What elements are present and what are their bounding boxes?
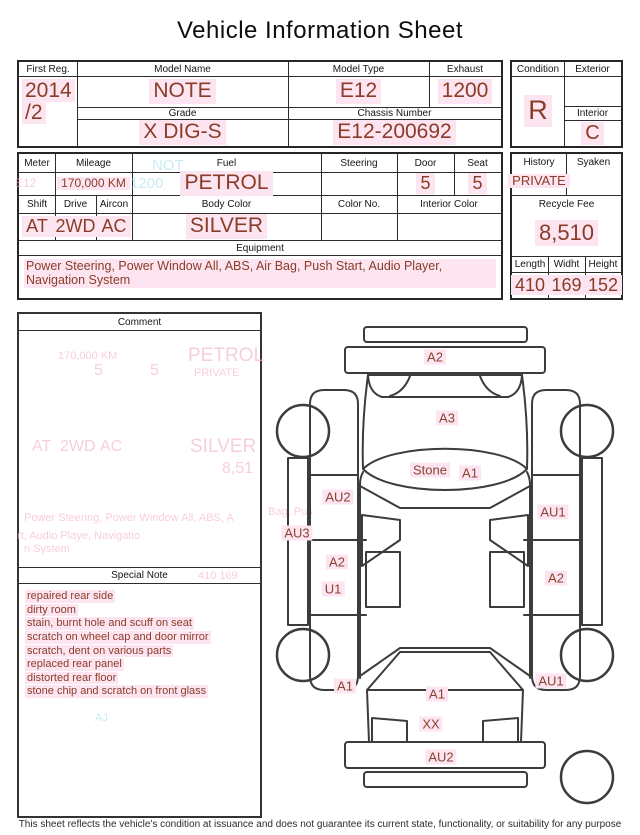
damage-code-label: AU1 [535,674,566,689]
damage-code-label: A1 [334,679,356,694]
damage-code-label: A2 [545,571,567,586]
car-damage-diagram [268,312,632,812]
table-history-fees: History PRIVATE Syaken Recycle Fee 8,510… [510,152,623,300]
spare-wheel [561,751,613,803]
mileage-label: Mileage [55,156,132,170]
special-note-line: distorted rear floor [19,671,260,685]
drive-value: 2WD [52,216,100,237]
condition-label: Condition [512,62,564,76]
damage-code-label: A1 [459,466,481,481]
history-label: History [512,156,566,169]
length-label: Length [512,257,548,271]
damage-code-label: AU2 [322,490,353,505]
grade-label: Grade [77,107,288,119]
wheel-front-right [561,629,613,681]
left-sill [288,458,308,625]
color-no-label: Color No. [321,197,397,211]
wheel-front-left [277,629,329,681]
chassis-number-value: E12-200692 [333,120,455,144]
exterior-label: Exterior [564,62,621,76]
damage-code-label: AU2 [425,750,456,765]
mileage-value: 170,000 KM [57,177,130,191]
equipment-label: Equipment [19,241,501,255]
length-value: 410 [511,275,549,296]
special-note-line: repaired rear side [19,589,260,603]
damage-code-label: Stone [410,463,450,478]
history-value: PRIVATE [508,174,570,189]
wheel-rear-right [561,405,613,457]
width-label: Widht [548,257,585,271]
special-note-line: stain, burnt hole and scuff on seat [19,616,260,630]
damage-code-label: XX [419,717,442,732]
body-color-label: Body Color [132,197,321,211]
syaken-label: Syaken [566,156,621,169]
width-value: 169 [547,275,585,296]
grade-value: X DIG-S [139,120,225,144]
comment-box: Comment Special Note repaired rear sided… [17,312,262,818]
special-note-line: replaced rear panel [19,657,260,671]
hood [367,652,523,690]
exhaust-value: 1200 [438,79,493,103]
door-label: Door [397,156,454,170]
damage-code-label: AU3 [281,526,312,541]
damage-code-label: A3 [436,411,458,426]
special-note-line: stone chip and scratch on front glass [19,684,260,698]
recycle-fee-value: 8,510 [535,220,598,245]
model-type-value: E12 [336,79,381,103]
aircon-label: Aircon [96,197,132,211]
damage-code-label: A2 [326,555,348,570]
comment-label: Comment [19,315,260,329]
special-note-line: scratch on wheel cap and door mirror [19,630,260,644]
table-specs: Meter Mileage Fuel Steering Door Seat 17… [17,152,503,300]
drive-label: Drive [55,197,96,211]
special-note-line: scratch, dent on various parts [19,644,260,658]
interior-color-label: Interior Color [397,197,501,211]
recycle-fee-label: Recycle Fee [512,198,621,211]
chassis-number-label: Chassis Number [288,107,501,119]
damage-code-label: A2 [424,350,446,365]
table-vehicle-identity: First Reg. 2014 /2 Model Name NOTE Model… [17,60,503,148]
meter-label: Meter [19,156,55,170]
door-value: 5 [416,173,434,194]
aircon-value: AC [97,216,130,237]
steering-label: Steering [321,156,397,170]
footer-disclaimer: This sheet reflects the vehicle's condit… [0,819,640,830]
right-sill [582,458,602,625]
shift-value: AT [22,216,52,237]
front-lower-bar [364,772,527,787]
damage-code-label: U1 [322,582,345,597]
wheel-rear-left [277,405,329,457]
interior-label: Interior [564,106,621,120]
special-note-line: dirty room [19,603,260,617]
first-reg-label: First Reg. [19,62,77,76]
height-label: Height [585,257,621,271]
comment-area [19,330,260,567]
body-color-value: SILVER [186,214,267,238]
model-name-label: Model Name [77,62,288,76]
rear-spoiler [364,327,527,342]
shift-label: Shift [19,197,55,211]
height-value: 152 [584,275,622,296]
seat-value: 5 [468,173,486,194]
table-condition: Condition R Exterior Interior C [510,60,623,148]
equipment-value: Power Steering, Power Window All, ABS, A… [24,259,496,288]
model-type-label: Model Type [288,62,429,76]
first-reg-value: 2014 /2 [22,80,75,124]
fuel-label: Fuel [132,156,321,170]
condition-value: R [524,95,552,126]
special-note-label: Special Note [19,568,260,582]
page-title: Vehicle Information Sheet [0,17,640,45]
fuel-value: PETROL [180,171,272,195]
model-name-value: NOTE [149,79,215,103]
exhaust-label: Exhaust [429,62,501,76]
special-note-list: repaired rear sidedirty roomstain, burnt… [19,589,260,698]
damage-code-label: AU1 [537,505,568,520]
seat-label: Seat [454,156,501,170]
damage-code-label: A1 [426,687,448,702]
interior-value: C [581,122,603,145]
vehicle-information-sheet: Vehicle Information Sheet First Reg. 201… [0,0,640,835]
